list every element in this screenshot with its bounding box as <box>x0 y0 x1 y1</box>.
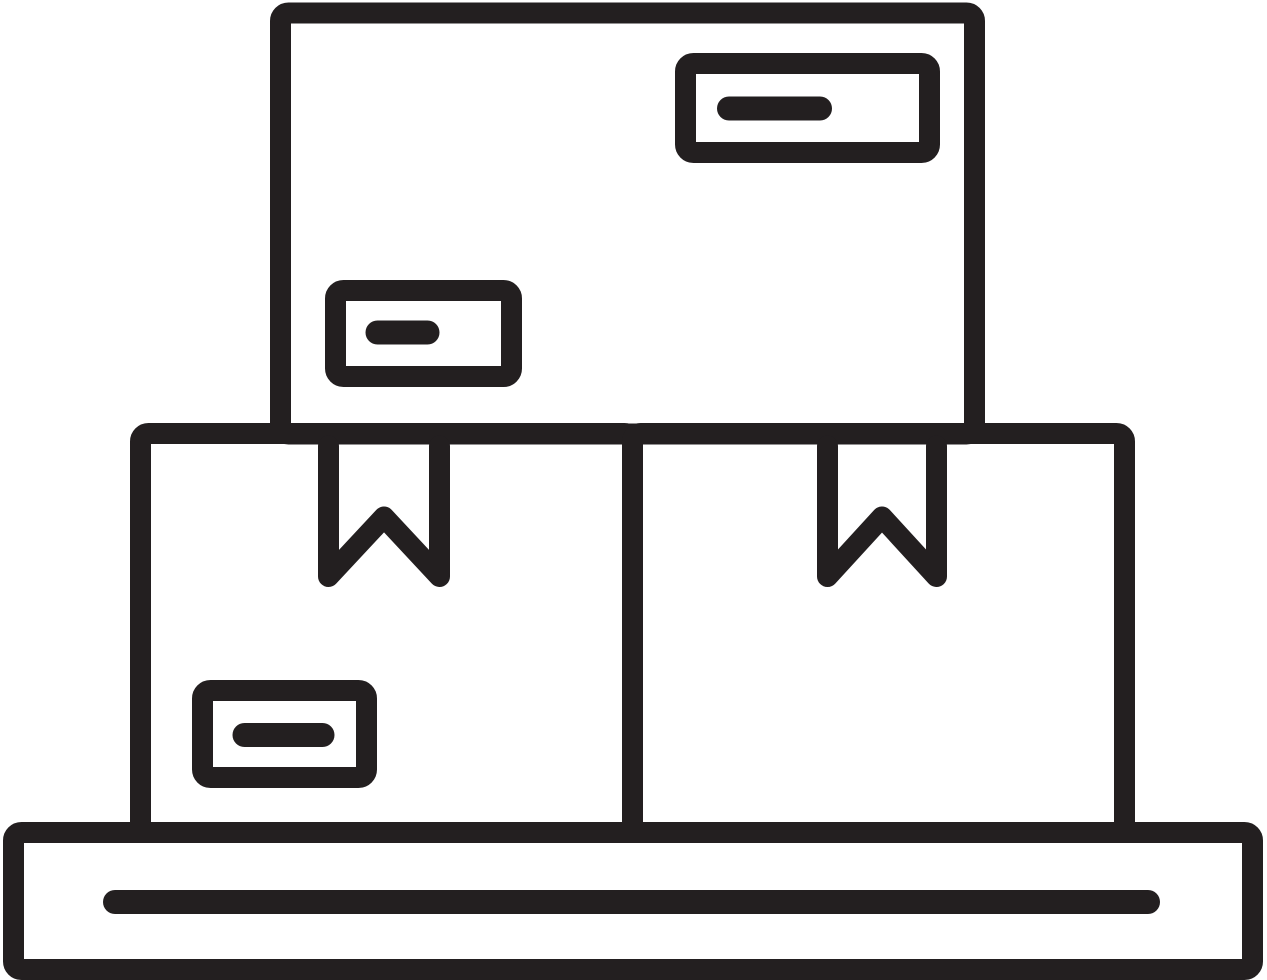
page: { "icon": { "title": "Delivery boxes on … <box>0 0 1267 980</box>
delivery-boxes-icon: Delivery boxes on pallet icon <box>0 0 1267 980</box>
icon-canvas: Delivery boxes on pallet icon <box>0 0 1267 980</box>
